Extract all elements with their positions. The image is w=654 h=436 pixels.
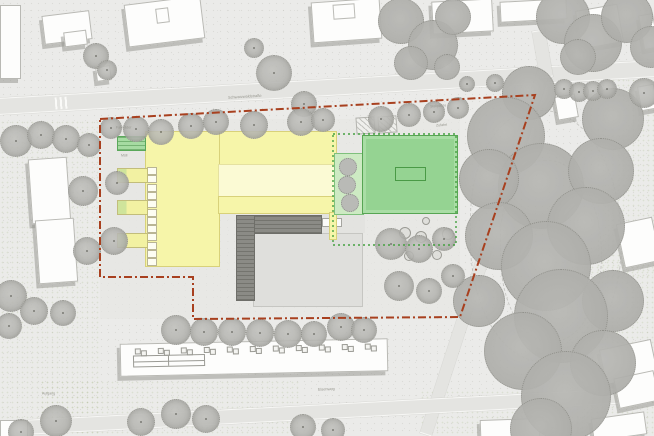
section-detail [133,354,205,368]
facade-module [147,209,157,217]
stair-core [233,348,239,354]
tree-canopy-cluster [394,46,428,80]
tree [68,176,98,206]
new-building-inner-courtyard [218,164,337,198]
tree [290,414,316,436]
tree-canopy-cluster [459,149,519,209]
tree [192,405,220,433]
stair-core [210,349,216,355]
facade-module [147,250,157,258]
tree [27,121,55,149]
gym-rooflight [395,167,426,181]
site-plan-canvas: SchwarzwaldstraßeStellplätzeZufahrtFahrr… [0,0,654,436]
section-detail-divider [168,356,169,366]
tree [97,60,117,80]
tree [368,106,394,132]
facade-module [147,184,157,192]
tree [301,321,327,347]
facade-module [147,217,157,225]
existing-building [333,3,356,19]
tree-canopy-cluster [435,0,471,35]
tree [20,297,48,325]
tree [246,319,274,347]
tree-canopy-cluster [560,39,596,75]
tree [629,78,654,108]
zebra-crossing [55,97,70,110]
tree [105,171,129,195]
facade-module [147,192,157,200]
section-detail-line [134,360,204,362]
tree [375,228,407,260]
existing-building [0,5,21,79]
tree [397,103,421,127]
stair-core [279,347,285,353]
tree [178,113,204,139]
skylight-circle [339,158,357,176]
stair-core [256,348,262,354]
tree [240,111,268,139]
tree [321,418,345,436]
tree [40,405,72,436]
skylight-circle [341,194,359,212]
tree [161,399,191,429]
tree [100,227,128,255]
tree [405,235,433,263]
tree-canopy-cluster [434,54,460,80]
existing-building [63,30,88,48]
tree [244,38,264,58]
existing-building [28,157,71,225]
tree [218,318,246,346]
tree [256,55,292,91]
stair-core [302,347,308,353]
tree [384,271,414,301]
play-equipment-circle [432,250,442,260]
tree [203,109,229,135]
tree [73,237,101,265]
play-equipment-circle [422,217,430,225]
facade-module [147,175,157,183]
tree [190,318,218,346]
tree [441,264,465,288]
tree [52,125,80,153]
stair-core [348,346,354,352]
schoolyard-paving [253,233,363,307]
tree [311,108,335,132]
facade-module [147,200,157,208]
tree [351,317,377,343]
new-building-mid-bar [218,196,337,214]
tree [161,315,191,345]
tree [447,97,469,119]
tree [77,133,101,157]
tree [486,74,504,92]
tree [597,79,617,99]
tree [432,227,456,251]
entrance-canopy [117,200,148,215]
facade-module [147,242,157,250]
stair-core [325,346,331,352]
tree [50,300,76,326]
facade-module [147,167,157,175]
existing-building [35,218,78,285]
entrance-label: Aufgang [42,392,55,396]
tree [459,76,475,92]
facade-module [147,225,157,233]
tree [274,320,302,348]
old-building-left-wing [236,215,255,301]
facade-module [147,233,157,241]
tree [127,408,155,436]
existing-building [155,7,170,23]
waste-label: Müll [121,154,127,158]
bike-label: Fahrräder [116,126,131,130]
tree [148,119,174,145]
street-label-bottom: Elsenweg [318,387,335,392]
skylight-circle [338,176,356,194]
new-building-connector [329,212,337,240]
facade-module [147,258,157,266]
stair-core [371,345,377,351]
tree [416,278,442,304]
